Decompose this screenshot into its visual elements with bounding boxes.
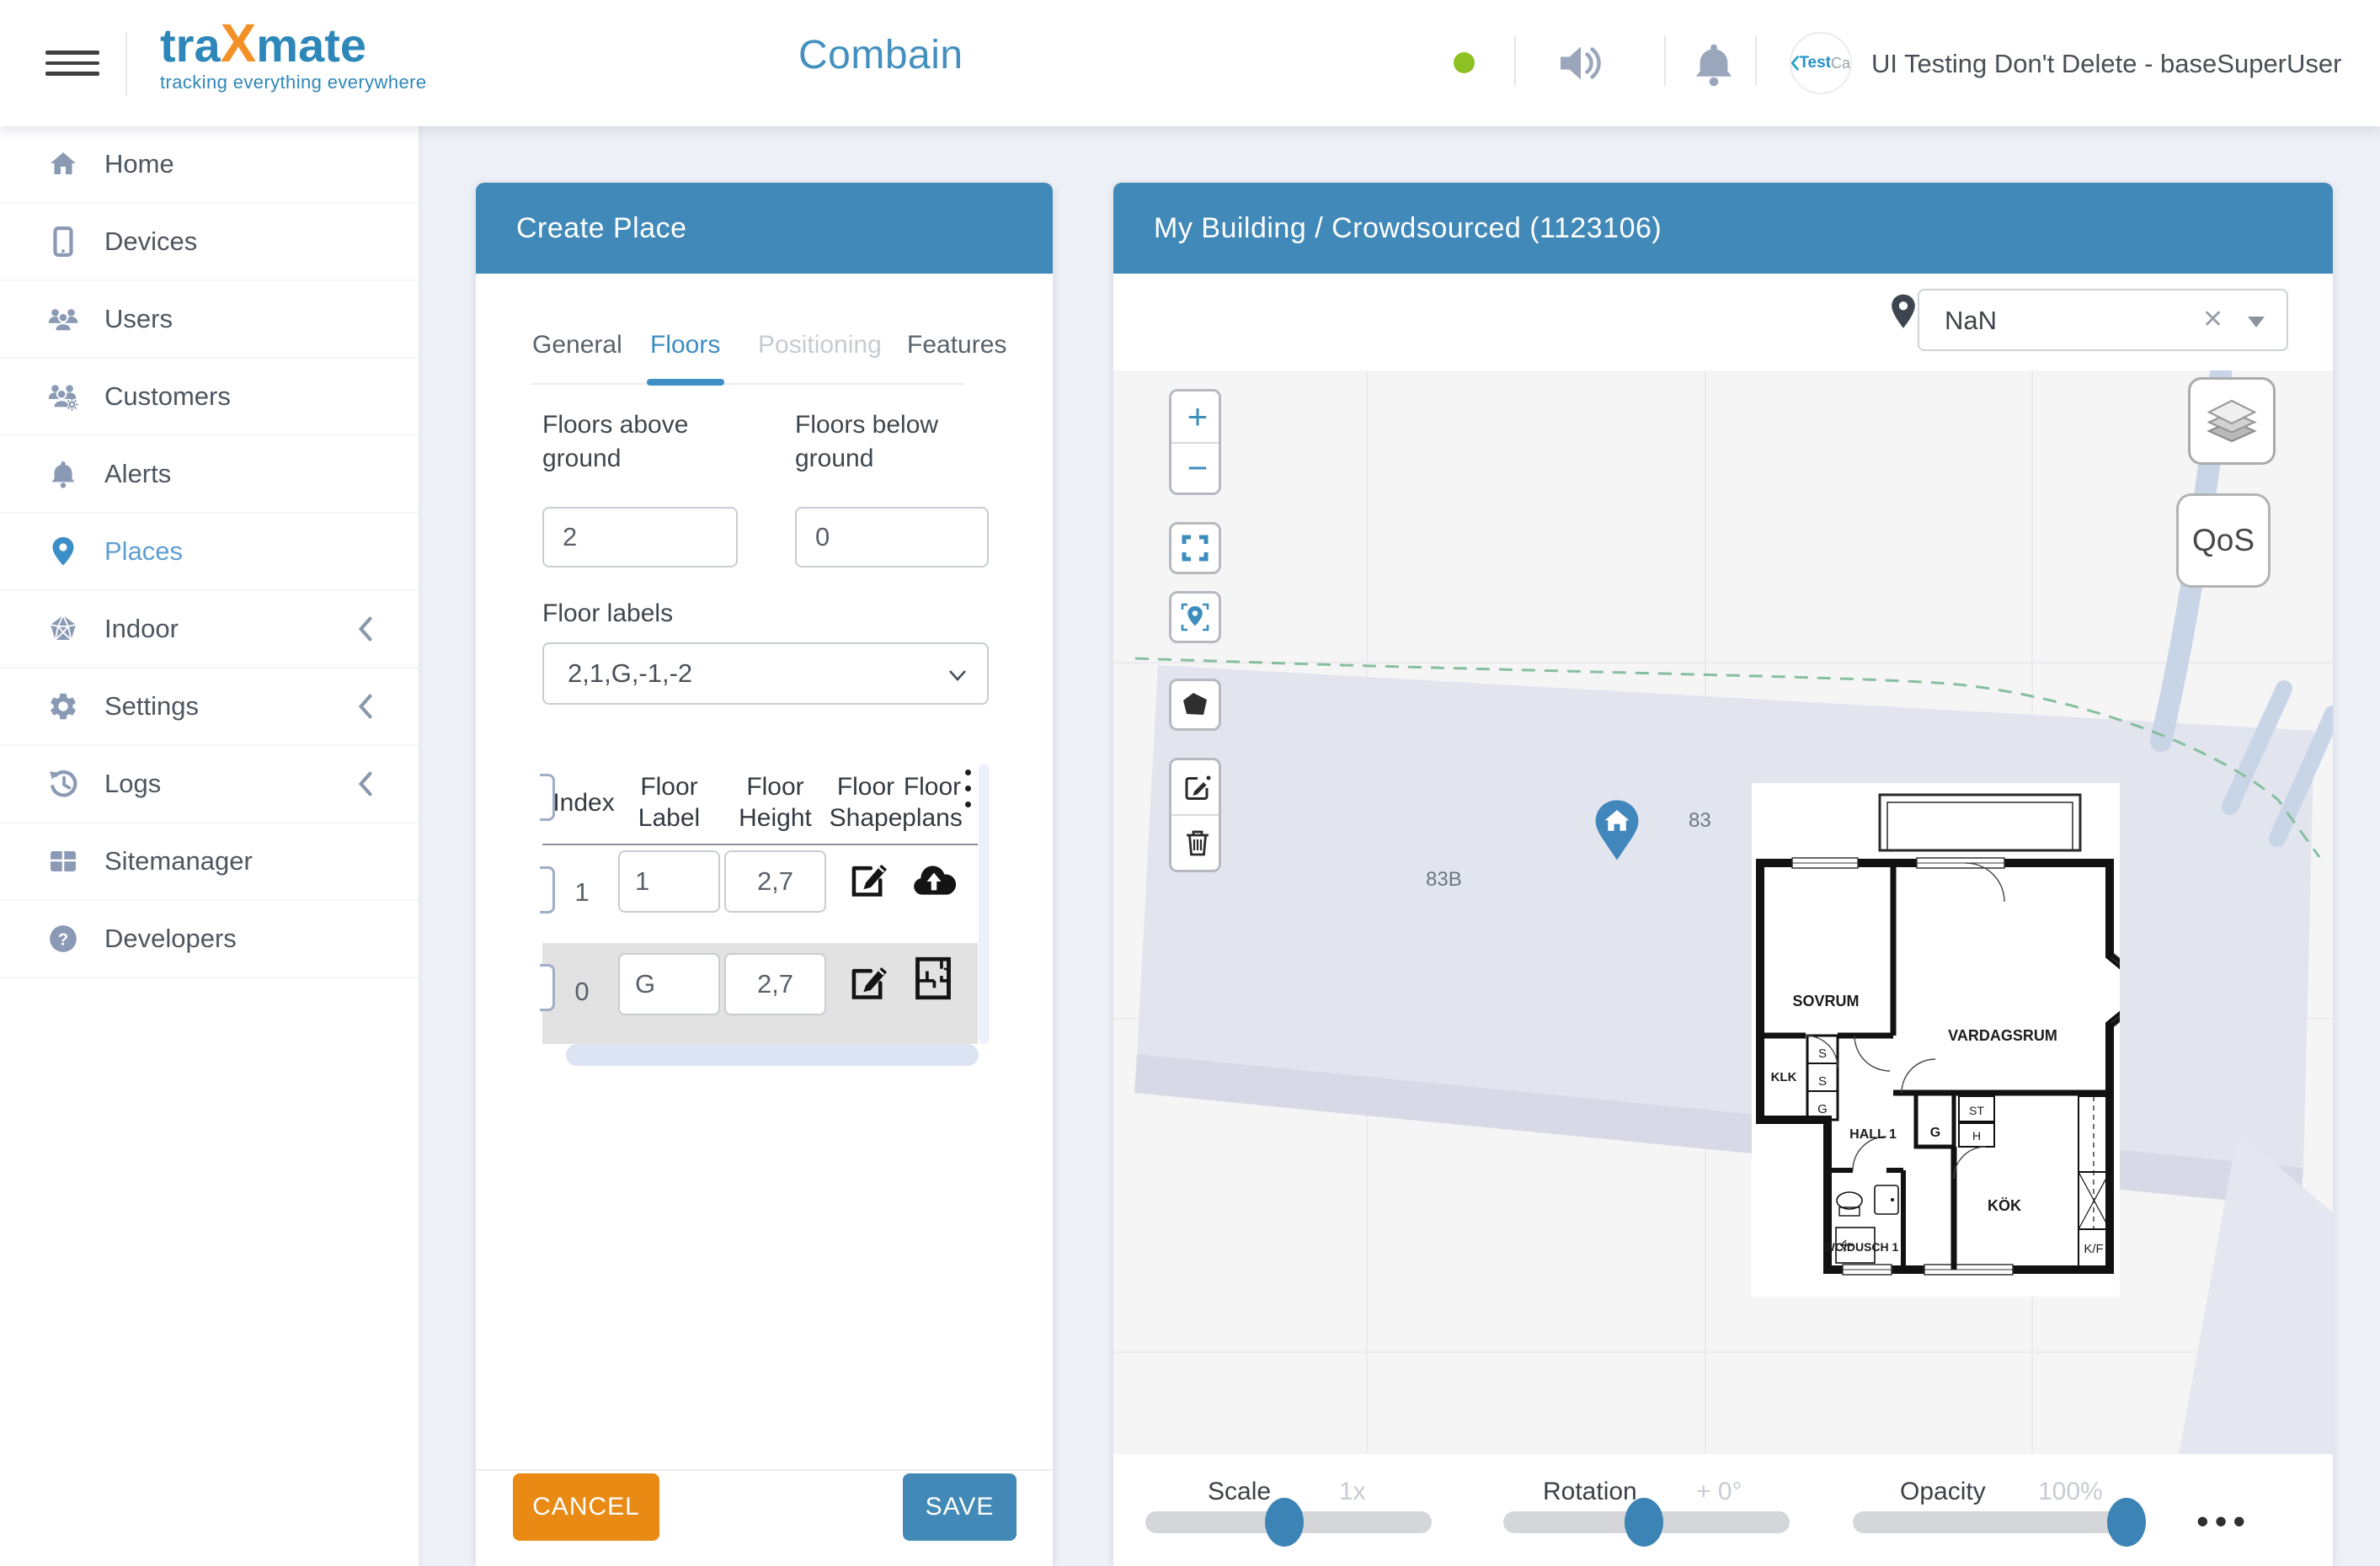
table-horizontal-scrollbar[interactable] [566,1044,979,1066]
locate-pin-icon [1179,601,1211,633]
room-label-kok: KÖK [1988,1197,2021,1214]
room-label-sovrum: SOVRUM [1792,993,1859,1009]
floor-height-input[interactable] [724,953,826,1015]
sidebar-item-places[interactable]: Places [0,514,419,591]
customers-icon [47,381,79,413]
sidebar-item-sitemanager[interactable]: Sitemanager [0,823,419,901]
room-label-klk: KLK [1771,1070,1797,1084]
row-checkbox-partial[interactable] [540,866,555,913]
col-header-floor-shape: Floor Shape [827,764,905,841]
sidebar-item-home[interactable]: Home [0,126,419,204]
table-vertical-scrollbar[interactable] [979,764,990,1044]
tablet-icon [47,226,79,258]
notifications-bell-icon[interactable] [1689,40,1738,88]
sidebar-item-users[interactable]: Users [0,281,419,359]
tabs-divider [531,383,964,385]
opacity-label: Opacity [1900,1478,1986,1506]
floor-labels-select[interactable]: 2,1,G,-1,-2 [542,642,989,705]
address-label-83b: 83B [1426,868,1462,892]
layers-button[interactable] [2188,377,2276,465]
sidebar-item-developers[interactable]: ? Developers [0,901,419,978]
user-name[interactable]: UI Testing Don't Delete - baseSuperUser [1871,49,2341,79]
floorplan-icon [910,954,956,1003]
scale-slider[interactable] [1145,1511,1432,1533]
floorplan-overlay[interactable]: SOVRUM VARDAGSRUM KLK S S G HALL 1 G ST … [1752,783,2120,1297]
tab-features[interactable]: Features [907,331,1006,360]
cloud-upload-icon [912,863,956,900]
pentagon-icon [1181,691,1209,718]
sidebar-item-customers[interactable]: Customers [0,359,419,436]
users-group-icon [47,304,79,334]
bell-icon [47,459,79,489]
floor-selector-value: NaN [1945,306,1997,336]
floor-labels-label: Floor labels [542,597,673,631]
create-place-title: Create Place [516,212,687,245]
chevron-left-icon [350,771,382,796]
sidebar-item-devices[interactable]: Devices [0,204,419,281]
scale-slider-knob[interactable] [1265,1498,1304,1547]
col-header-floor-label: Floor Label [618,764,720,841]
scale-value: 1x [1339,1478,1366,1506]
closet-label-s: S [1818,1074,1827,1089]
layers-icon [2204,395,2260,447]
create-place-header: Create Place [476,183,1053,274]
building-map-panel: My Building / Crowdsourced (1123106) NaN… [1113,183,2333,1566]
opacity-value: 100% [2038,1478,2103,1506]
fullscreen-icon [1181,534,1209,562]
room-label-wc: WC/DUSCH 1 [1824,1240,1899,1254]
room-label-g: G [1930,1126,1940,1140]
footer-divider [476,1469,1053,1471]
sidebar-item-settings[interactable]: Settings [0,668,419,746]
room-label-vardagsrum: VARDAGSRUM [1948,1027,2057,1044]
floors-below-input[interactable] [795,507,989,567]
active-tab-indicator [647,379,724,386]
online-status-dot [1454,52,1475,73]
sidebar-item-label: Users [104,304,173,334]
divider [125,32,127,96]
row-index: 1 [557,877,607,908]
floors-below-label: Floors below ground [795,408,989,476]
rotation-value: + 0° [1696,1478,1742,1506]
floor-label-input[interactable] [618,850,720,913]
user-avatar[interactable]: TestCa [1790,32,1852,94]
tab-general[interactable]: General [532,331,622,360]
floor-label-input[interactable] [618,953,720,1015]
edit-floor-shape-button[interactable] [846,959,890,1007]
traxmate-logo: traXmate tracking everything everywhere [160,19,426,93]
opacity-slider[interactable] [1853,1511,2139,1533]
chevron-left-icon [350,616,382,642]
sidebar-item-alerts[interactable]: Alerts [0,436,419,514]
save-button[interactable]: SAVE [903,1473,1017,1541]
room-label-h: H [1972,1129,1981,1143]
address-label-83: 83 [1689,809,1711,833]
upload-floorplan-button[interactable] [912,863,956,903]
building-marker-icon[interactable] [1593,798,1641,862]
closet-label-g: G [1817,1102,1828,1116]
sidebar-item-indoor[interactable]: Indoor [0,591,419,668]
qos-button[interactable]: QoS [2176,493,2271,588]
room-label-st: ST [1969,1104,1984,1117]
edit-square-pencil-icon [846,856,890,902]
gear-badge [66,398,77,410]
dropdown-caret-icon[interactable] [2248,317,2265,328]
floor-height-input[interactable] [724,850,826,913]
map-canvas[interactable]: 83 83B [1113,370,2333,1454]
question-circle-icon: ? [47,923,79,955]
plus-icon: + [1187,400,1209,434]
home-icon [47,149,79,179]
edit-square-pencil-icon [846,959,890,1004]
avatar-text: Test [1799,54,1831,72]
divider [1664,35,1666,86]
divider [1514,35,1516,86]
sidebar-item-label: Alerts [104,459,171,489]
row-index: 0 [557,977,607,1007]
svg-text:?: ? [58,930,68,949]
sidebar-item-label: Devices [104,226,197,257]
chevron-left-icon [350,694,382,719]
table-grid-icon [47,846,79,876]
location-pin-icon [1886,292,1921,331]
sidebar-item-label: Places [104,536,183,567]
sidebar-item-label: Settings [104,691,199,722]
rotation-label: Rotation [1543,1478,1637,1506]
draw-polygon-button[interactable] [1169,679,1221,731]
sidebar-item-label: Sitemanager [104,846,253,876]
speaker-icon[interactable] [1556,40,1605,86]
logo-text-2: mate [256,19,366,72]
floors-above-input[interactable] [542,507,738,567]
tab-floors[interactable]: Floors [650,331,720,360]
zoom-in-button[interactable]: + [1171,391,1221,442]
minus-icon: − [1187,451,1209,485]
row-checkbox-partial[interactable] [540,964,555,1011]
delete-shape-button[interactable] [1171,814,1221,870]
opacity-slider-knob[interactable] [2107,1498,2146,1547]
divider [1755,35,1757,86]
edit-delete-controls [1169,758,1221,872]
page-title: Combain [798,32,963,78]
tab-positioning[interactable]: Positioning [758,331,882,360]
sidebar-item-label: Customers [104,381,231,412]
sidebar: Home Devices Users Customers Alerts Plac… [0,126,419,1566]
cancel-button[interactable]: CANCEL [513,1473,659,1541]
indoor-polygon-icon [47,614,79,644]
hamburger-menu-icon[interactable] [45,51,101,76]
more-options-button[interactable]: ••• [2196,1501,2251,1542]
rotation-slider-knob[interactable] [1625,1498,1663,1547]
view-floorplan-button[interactable] [910,954,956,1005]
logo-text: tra [160,19,221,72]
floor-labels-value: 2,1,G,-1,-2 [568,658,692,689]
col-header-index: Index [553,764,614,841]
sidebar-item-logs[interactable]: Logs [0,746,419,823]
testcafe-logo-icon [1791,54,1799,72]
col-header-floor-height: Floor Height [723,764,828,841]
sidebar-item-label: Developers [104,924,237,954]
gear-icon [47,690,79,722]
room-label-hall: HALL 1 [1849,1127,1897,1142]
locate-place-button[interactable] [1169,591,1221,643]
history-icon [47,768,79,800]
floors-above-label: Floors above ground [542,408,736,476]
table-header-divider [542,844,978,845]
logo-tagline: tracking everything everywhere [160,72,426,93]
zoom-controls: + − [1169,389,1221,495]
clear-selection-icon[interactable]: ✕ [2202,305,2223,334]
sidebar-item-label: Logs [104,769,161,799]
floor-selector-dropdown[interactable]: NaN ✕ [1918,289,2288,351]
chevron-down-icon [947,664,969,686]
map-pin-icon [47,535,79,567]
fullscreen-button[interactable] [1169,522,1221,574]
scale-label: Scale [1208,1478,1271,1506]
avatar-text-2: Ca [1831,55,1850,72]
table-menu-dots-icon[interactable] [965,770,971,818]
building-panel-title: My Building / Crowdsourced (1123106) [1154,212,1662,245]
map-decorations [1113,370,2333,1454]
col-header-floor-plans: Floor plans [898,764,967,841]
logo-x: X [221,13,257,73]
closet-label-s: S [1818,1047,1827,1061]
create-place-panel: Create Place General Floors Positioning … [476,183,1053,1566]
trash-icon [1184,828,1211,857]
sidebar-item-label: Indoor [104,614,179,644]
edit-pencil-icon [1183,773,1212,802]
top-navbar: traXmate tracking everything everywhere … [0,0,2380,126]
edit-shape-button[interactable] [1171,760,1221,814]
sidebar-item-label: Home [104,149,174,179]
building-panel-header: My Building / Crowdsourced (1123106) [1113,183,2333,274]
edit-floor-shape-button[interactable] [846,856,890,904]
rotation-slider[interactable] [1503,1511,1790,1533]
room-label-kf: K/F [2084,1242,2103,1256]
zoom-out-button[interactable]: − [1171,442,1221,493]
